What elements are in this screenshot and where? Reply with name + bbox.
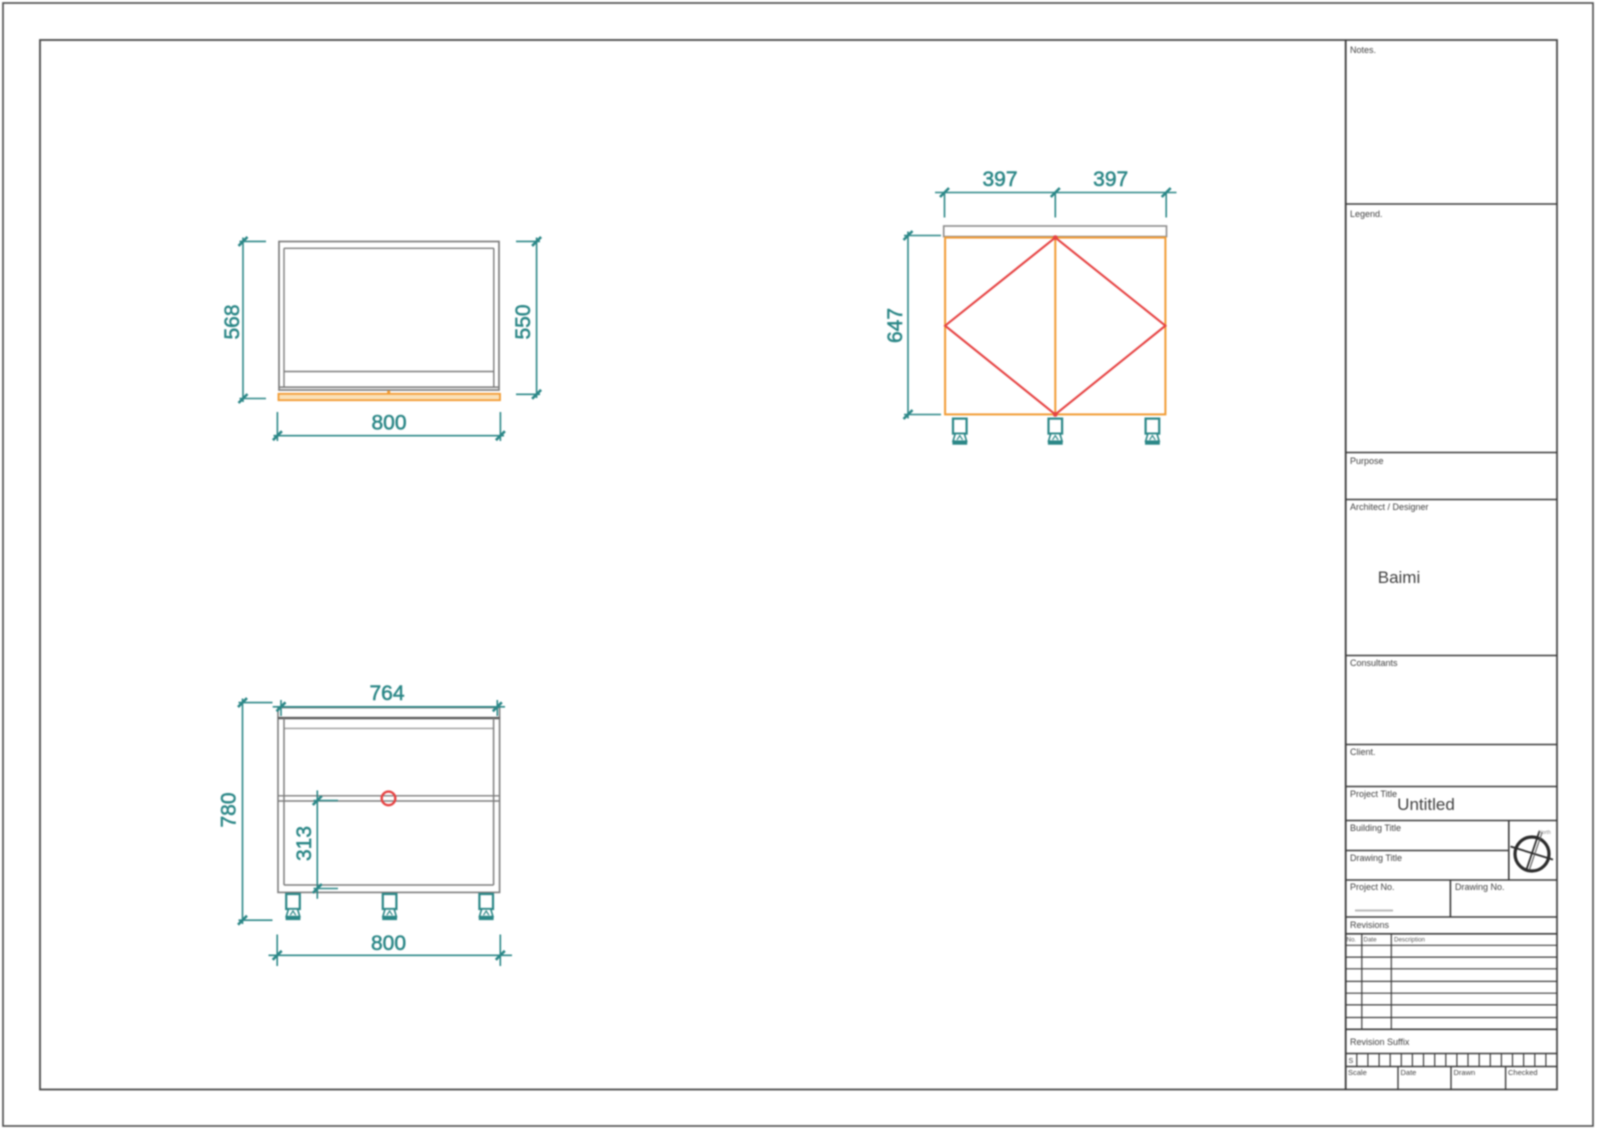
svg-text:Notes.: Notes. (1350, 45, 1376, 55)
svg-text:Untitled: Untitled (1397, 795, 1455, 814)
svg-text:Drawn: Drawn (1454, 1068, 1476, 1077)
svg-text:Revisions: Revisions (1350, 920, 1390, 930)
svg-text:Date: Date (1401, 1068, 1417, 1077)
svg-text:Legend.: Legend. (1350, 209, 1383, 219)
svg-text:647: 647 (884, 308, 907, 343)
svg-text:North: North (1539, 830, 1551, 836)
svg-text:550: 550 (512, 304, 535, 339)
svg-text:397: 397 (1093, 168, 1128, 191)
svg-text:Architect / Designer: Architect / Designer (1350, 502, 1429, 512)
svg-text:800: 800 (371, 412, 406, 435)
svg-text:Project No.: Project No. (1350, 882, 1395, 892)
svg-text:Building Title: Building Title (1350, 823, 1401, 833)
svg-text:397: 397 (982, 168, 1017, 191)
svg-text:Client.: Client. (1350, 747, 1376, 757)
svg-text:Description: Description (1394, 937, 1426, 944)
svg-text:313: 313 (293, 826, 316, 861)
svg-text:Consultants: Consultants (1350, 658, 1398, 668)
svg-text:Baimi: Baimi (1378, 568, 1421, 587)
svg-text:800: 800 (371, 932, 406, 955)
svg-text:S: S (1349, 1058, 1354, 1065)
svg-text:Project Title: Project Title (1350, 789, 1397, 799)
svg-text:Drawing Title: Drawing Title (1350, 853, 1402, 863)
svg-text:780: 780 (217, 792, 240, 827)
svg-text:568: 568 (221, 304, 244, 339)
svg-text:Revision Suffix: Revision Suffix (1350, 1037, 1410, 1047)
svg-text:Checked: Checked (1508, 1068, 1538, 1077)
svg-text:Date: Date (1364, 937, 1378, 944)
svg-text:Purpose: Purpose (1350, 456, 1384, 466)
svg-text:764: 764 (369, 682, 404, 705)
svg-text:Drawing No.: Drawing No. (1455, 882, 1505, 892)
svg-text:No.: No. (1347, 937, 1357, 944)
svg-text:Scale: Scale (1348, 1068, 1367, 1077)
